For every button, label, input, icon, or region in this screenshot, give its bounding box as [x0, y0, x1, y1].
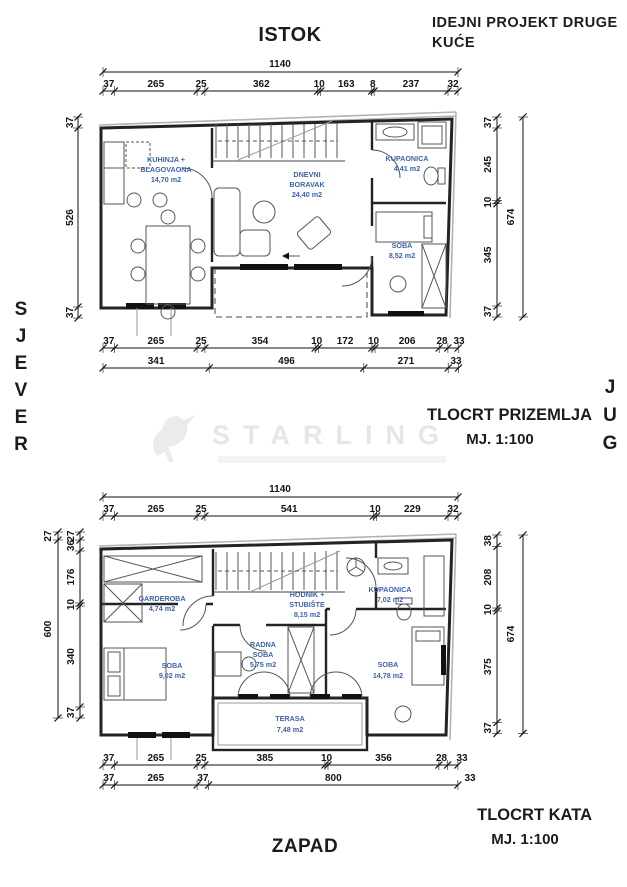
dim-label: 10	[314, 79, 326, 90]
dim-label: 526	[65, 209, 76, 226]
dim-label: 10	[321, 753, 333, 764]
dim-label: 541	[281, 504, 298, 515]
shaft	[288, 627, 314, 693]
dim-label: 10	[66, 599, 77, 611]
dim-label: 265	[147, 336, 164, 347]
upper-right-total-dimline	[518, 532, 528, 737]
dim-label: 229	[404, 504, 421, 515]
dim-label: 33	[450, 356, 462, 367]
dim-label: 10	[311, 336, 323, 347]
dim-label: 25	[195, 504, 207, 515]
dim-label: 496	[278, 356, 295, 367]
dim-label: 37	[103, 504, 115, 515]
dim-label: 37	[65, 117, 76, 129]
sofa	[214, 188, 270, 256]
dim-label: 1140	[269, 59, 291, 70]
door-arc	[346, 558, 376, 588]
dim-label: 163	[338, 79, 355, 90]
roof-overhang	[99, 534, 456, 740]
blueprint-page: ISTOK IDEJNI PROJEKT DRUGE KUĆE SJEVER J…	[0, 0, 627, 887]
window	[441, 645, 446, 675]
dim-label: 674	[506, 208, 517, 225]
dim-label: 237	[403, 79, 420, 90]
ground-right-dimline	[492, 114, 502, 321]
coffee-table	[253, 201, 275, 223]
floorplan-drawing: 1140 37 265 25 362 10 163 8 237 32 37 52…	[0, 0, 627, 887]
door-arc	[183, 596, 213, 626]
dim-label: 341	[148, 356, 165, 367]
dim-label: 28	[436, 753, 448, 764]
dim-label: 32	[447, 504, 459, 515]
room-label: 14,70 m2	[151, 175, 181, 184]
dim-label: 10	[368, 336, 380, 347]
dim-label: 375	[483, 658, 494, 675]
room-label: SOBA	[162, 661, 183, 670]
dim-label: 208	[483, 568, 494, 585]
room-label: KUPAONICA	[369, 585, 412, 594]
dim-label: 28	[436, 336, 448, 347]
room-label: RADNA	[250, 640, 276, 649]
room-label: TERASA	[275, 714, 305, 723]
ground-terrace-outline	[215, 268, 367, 317]
room-label: 5,75 m2	[250, 660, 276, 669]
dim-label: 206	[399, 336, 416, 347]
dim-label: 345	[483, 246, 494, 263]
room-label: 14,78 m2	[373, 671, 403, 680]
upper-floor-plan: 1140 37 265 25 541 10 229 32 27 600 27 3…	[43, 484, 528, 790]
dim-label: 8	[370, 79, 376, 90]
dim-label: 37	[103, 773, 115, 784]
dim-label: 265	[147, 773, 164, 784]
dim-label: 1140	[269, 484, 291, 495]
dim-label: 25	[195, 79, 207, 90]
dim-label: 37	[197, 773, 209, 784]
terrace	[213, 698, 367, 750]
room-label: 8,52 m2	[389, 251, 415, 260]
room-label: 4,41 m2	[394, 164, 420, 173]
room-label: DNEVNI	[293, 170, 320, 179]
room-label: SOBA	[253, 650, 274, 659]
bed-soba1	[104, 648, 166, 700]
room-label: SOBA	[378, 660, 399, 669]
upper-right-dimline	[492, 532, 502, 737]
upper-left-inner-dimline	[75, 529, 85, 722]
room-label: KUPAONICA	[386, 154, 429, 163]
dim-label: 265	[147, 753, 164, 764]
ground-outer-wall	[101, 119, 452, 315]
room-label: HODNIK +	[290, 590, 325, 599]
room-label: SOBA	[392, 241, 413, 250]
dim-label: 37	[66, 707, 77, 719]
dim-label: 354	[252, 336, 269, 347]
dim-label: 37	[65, 307, 76, 319]
dining-table	[127, 193, 205, 319]
dim-label: 33	[453, 336, 465, 347]
bedroom-furniture	[376, 212, 446, 308]
ground-right-total-dimline	[518, 114, 528, 321]
stairs	[216, 121, 338, 160]
dim-label: 10	[483, 604, 494, 616]
dim-label: 27	[66, 530, 77, 542]
dim-label: 37	[103, 753, 115, 764]
dim-label: 32	[447, 79, 459, 90]
dim-label: 37	[483, 306, 494, 318]
room-label: 7,02 m2	[377, 595, 403, 604]
dim-label: 10	[483, 196, 494, 208]
stairs	[216, 551, 340, 592]
dim-label: 600	[43, 620, 54, 637]
french-doors	[238, 672, 362, 699]
dim-label: 356	[375, 753, 392, 764]
dim-label: 245	[483, 156, 494, 173]
room-label: KUHINJA +	[147, 155, 185, 164]
dim-label: 33	[464, 773, 476, 784]
dim-label: 674	[506, 625, 517, 642]
room-label: 8,15 m2	[294, 610, 320, 619]
dim-label: 176	[66, 568, 77, 585]
dim-label: 172	[337, 336, 354, 347]
room-label: STUBIŠTE	[289, 600, 325, 609]
door-arc	[342, 256, 372, 286]
ground-floor-plan: 1140 37 265 25 362 10 163 8 237 32 37 52…	[65, 59, 528, 373]
room-label: BORAVAK	[289, 180, 325, 189]
dim-label: 37	[483, 722, 494, 734]
entry-arrow	[282, 253, 300, 260]
window	[294, 264, 342, 270]
dim-label: 37	[103, 336, 115, 347]
armchair	[296, 216, 332, 251]
dim-label: 271	[398, 356, 415, 367]
room-label: 4,74 m2	[149, 604, 175, 613]
dim-label: 25	[195, 753, 207, 764]
room-label: 9,02 m2	[159, 671, 185, 680]
dim-label: 36	[66, 540, 77, 552]
dim-label: 265	[147, 79, 164, 90]
window	[162, 732, 190, 738]
dim-label: 38	[483, 535, 494, 547]
room-label: 24,40 m2	[292, 190, 322, 199]
window	[128, 732, 156, 738]
window	[240, 264, 288, 270]
dim-label: 10	[370, 504, 382, 515]
dim-label: 27	[43, 530, 54, 542]
dim-label: 25	[195, 336, 207, 347]
dim-label: 33	[456, 753, 468, 764]
dim-label: 800	[325, 773, 342, 784]
dim-label: 265	[147, 504, 164, 515]
dim-label: 340	[66, 648, 77, 665]
dim-label: 37	[103, 79, 115, 90]
roof-overhang	[99, 112, 456, 318]
door-arc	[330, 609, 356, 635]
window	[388, 311, 424, 316]
upper-left-outer-dimline	[53, 529, 63, 722]
room-label: GARDEROBA	[138, 594, 185, 603]
dim-label: 37	[483, 117, 494, 129]
room-label: BLAGOVAONA	[140, 165, 191, 174]
dim-label: 362	[253, 79, 270, 90]
room-label: 7,48 m2	[277, 725, 303, 734]
dim-label: 385	[257, 753, 274, 764]
